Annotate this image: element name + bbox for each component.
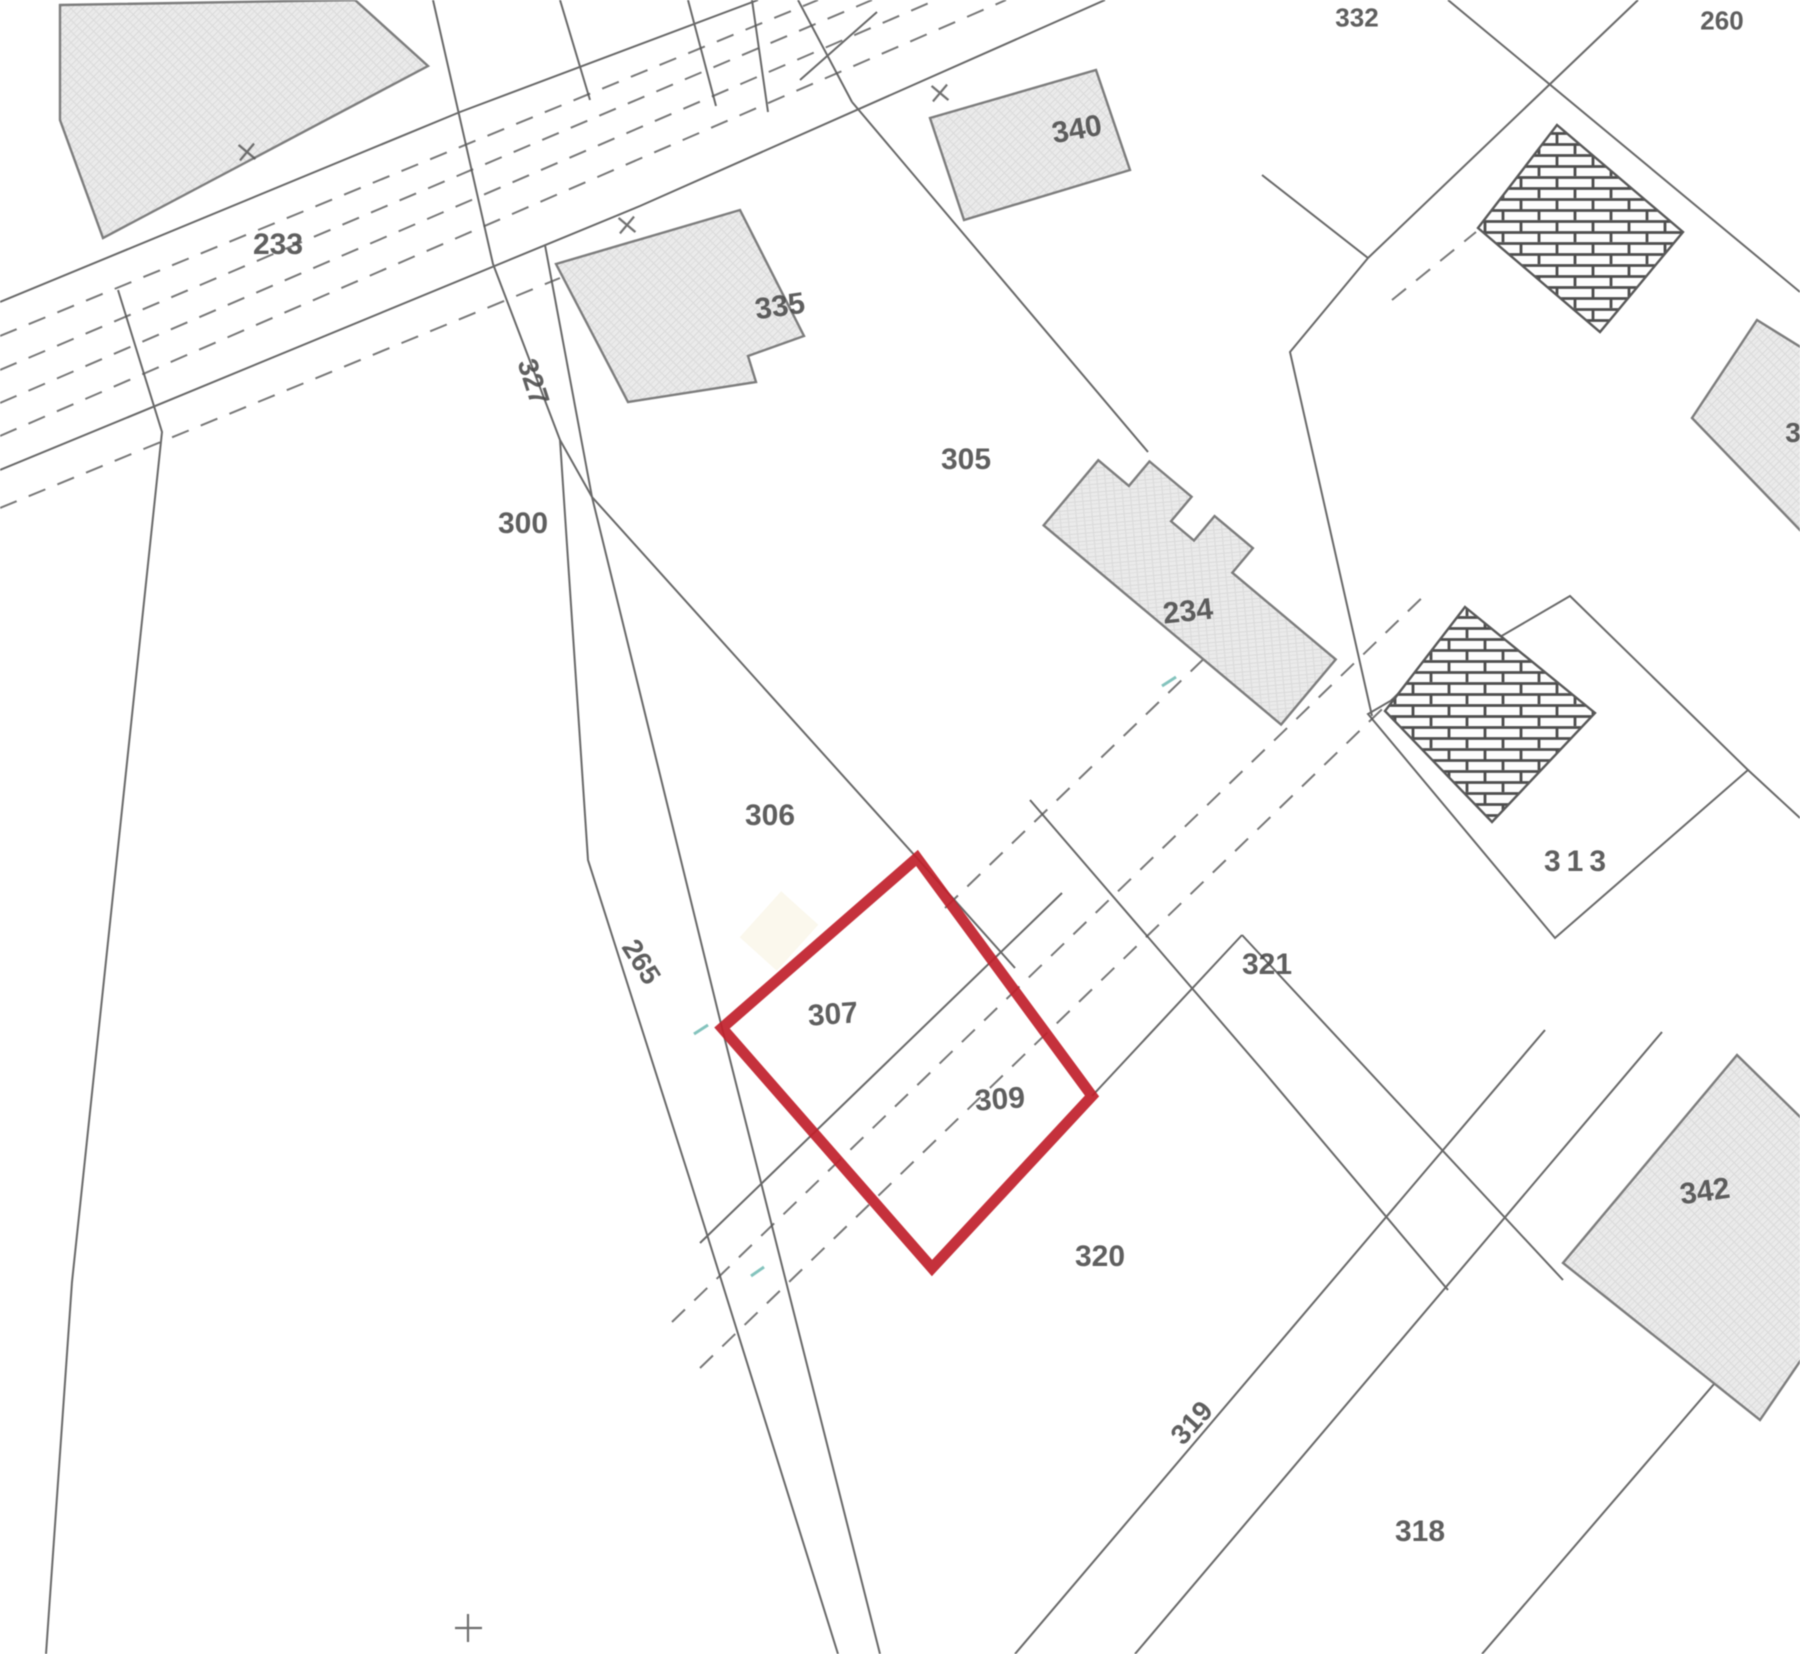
parcel-label-233: 233 <box>253 228 303 262</box>
parcel-label-321: 321 <box>1242 948 1292 982</box>
parcel-label-305: 305 <box>941 443 991 477</box>
parcel-label-260: 260 <box>1700 6 1743 37</box>
parcel-label-309: 309 <box>974 1081 1026 1118</box>
parcel-label-319: 319 <box>1164 1395 1219 1451</box>
parcel-label-320: 320 <box>1075 1240 1125 1274</box>
parcel-label-300: 300 <box>498 507 548 541</box>
parcel-label-306: 306 <box>745 799 795 833</box>
parcel-label-335: 335 <box>753 287 807 328</box>
cadastral-map: 2333353403322603273003052343133062653073… <box>0 0 1800 1654</box>
parcel-label-layer: 2333353403322603273003052343133062653073… <box>0 0 1800 1654</box>
parcel-label-313: 313 <box>1544 845 1612 879</box>
parcel-label-340: 340 <box>1049 109 1104 151</box>
parcel-label-327: 327 <box>511 355 556 409</box>
parcel-label-265: 265 <box>615 934 667 991</box>
parcel-label-3: 3 <box>1785 417 1800 449</box>
parcel-label-342: 342 <box>1678 1172 1732 1213</box>
parcel-label-307: 307 <box>807 996 859 1033</box>
parcel-label-332: 332 <box>1335 3 1378 34</box>
parcel-label-234: 234 <box>1161 592 1214 631</box>
parcel-label-318: 318 <box>1395 1515 1445 1549</box>
